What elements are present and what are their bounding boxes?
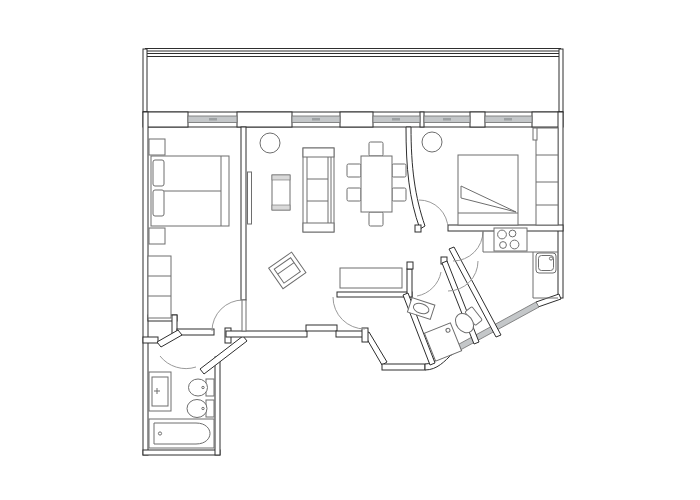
bathtub — [149, 419, 214, 448]
plant — [422, 132, 442, 152]
terrace-left-wall — [143, 49, 147, 112]
pillow — [153, 190, 164, 216]
double-bed — [151, 156, 229, 226]
wall-tv — [248, 172, 252, 224]
dining-table — [361, 156, 392, 212]
kitchen — [483, 228, 558, 298]
nightstand-top — [149, 139, 165, 155]
floor-plan-drawing — [0, 0, 700, 500]
bedroom-left — [148, 139, 229, 318]
stove — [494, 228, 527, 251]
bedroom-right — [422, 128, 558, 225]
bidet — [189, 379, 215, 396]
floor-plan-page — [0, 0, 700, 500]
plant — [260, 133, 280, 153]
shower-room — [407, 298, 461, 361]
nightstand-bottom — [149, 228, 165, 244]
living-dining-room — [248, 133, 407, 289]
bathroom — [149, 372, 214, 448]
terrace-railing — [145, 49, 561, 57]
right-exterior-wall — [558, 112, 563, 298]
living-bay-door-arc — [333, 297, 365, 329]
bedroom-left-door — [212, 300, 246, 331]
shower-room-door-arc — [417, 272, 441, 296]
sofa — [303, 148, 334, 232]
toilet — [187, 400, 214, 418]
wardrobe — [148, 256, 171, 318]
chair — [392, 188, 406, 201]
double-bed — [458, 155, 518, 225]
console-table — [340, 268, 402, 288]
terrace-right-wall — [559, 49, 563, 112]
coffee-table — [272, 175, 290, 210]
chair — [347, 164, 361, 177]
pillow — [153, 160, 164, 186]
chair — [369, 142, 383, 156]
toilet — [452, 305, 484, 336]
dining-set — [347, 142, 406, 226]
chair — [347, 188, 361, 201]
kitchen-sink — [536, 253, 556, 273]
left-exterior-wall — [143, 112, 148, 455]
terrace — [143, 49, 563, 113]
chair — [392, 164, 406, 177]
armchair — [269, 252, 306, 289]
wc — [452, 305, 484, 336]
chair — [369, 212, 383, 226]
vanity-sink — [149, 372, 171, 411]
wardrobe — [533, 128, 558, 225]
bathroom-door-arc — [160, 356, 196, 369]
